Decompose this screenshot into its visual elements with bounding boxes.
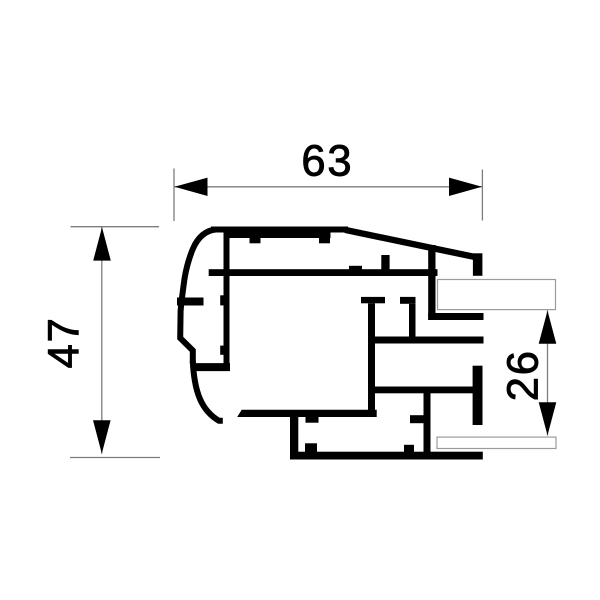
svg-text:26: 26 (500, 349, 548, 401)
svg-text:63: 63 (301, 138, 353, 186)
svg-text:47: 47 (41, 316, 89, 368)
